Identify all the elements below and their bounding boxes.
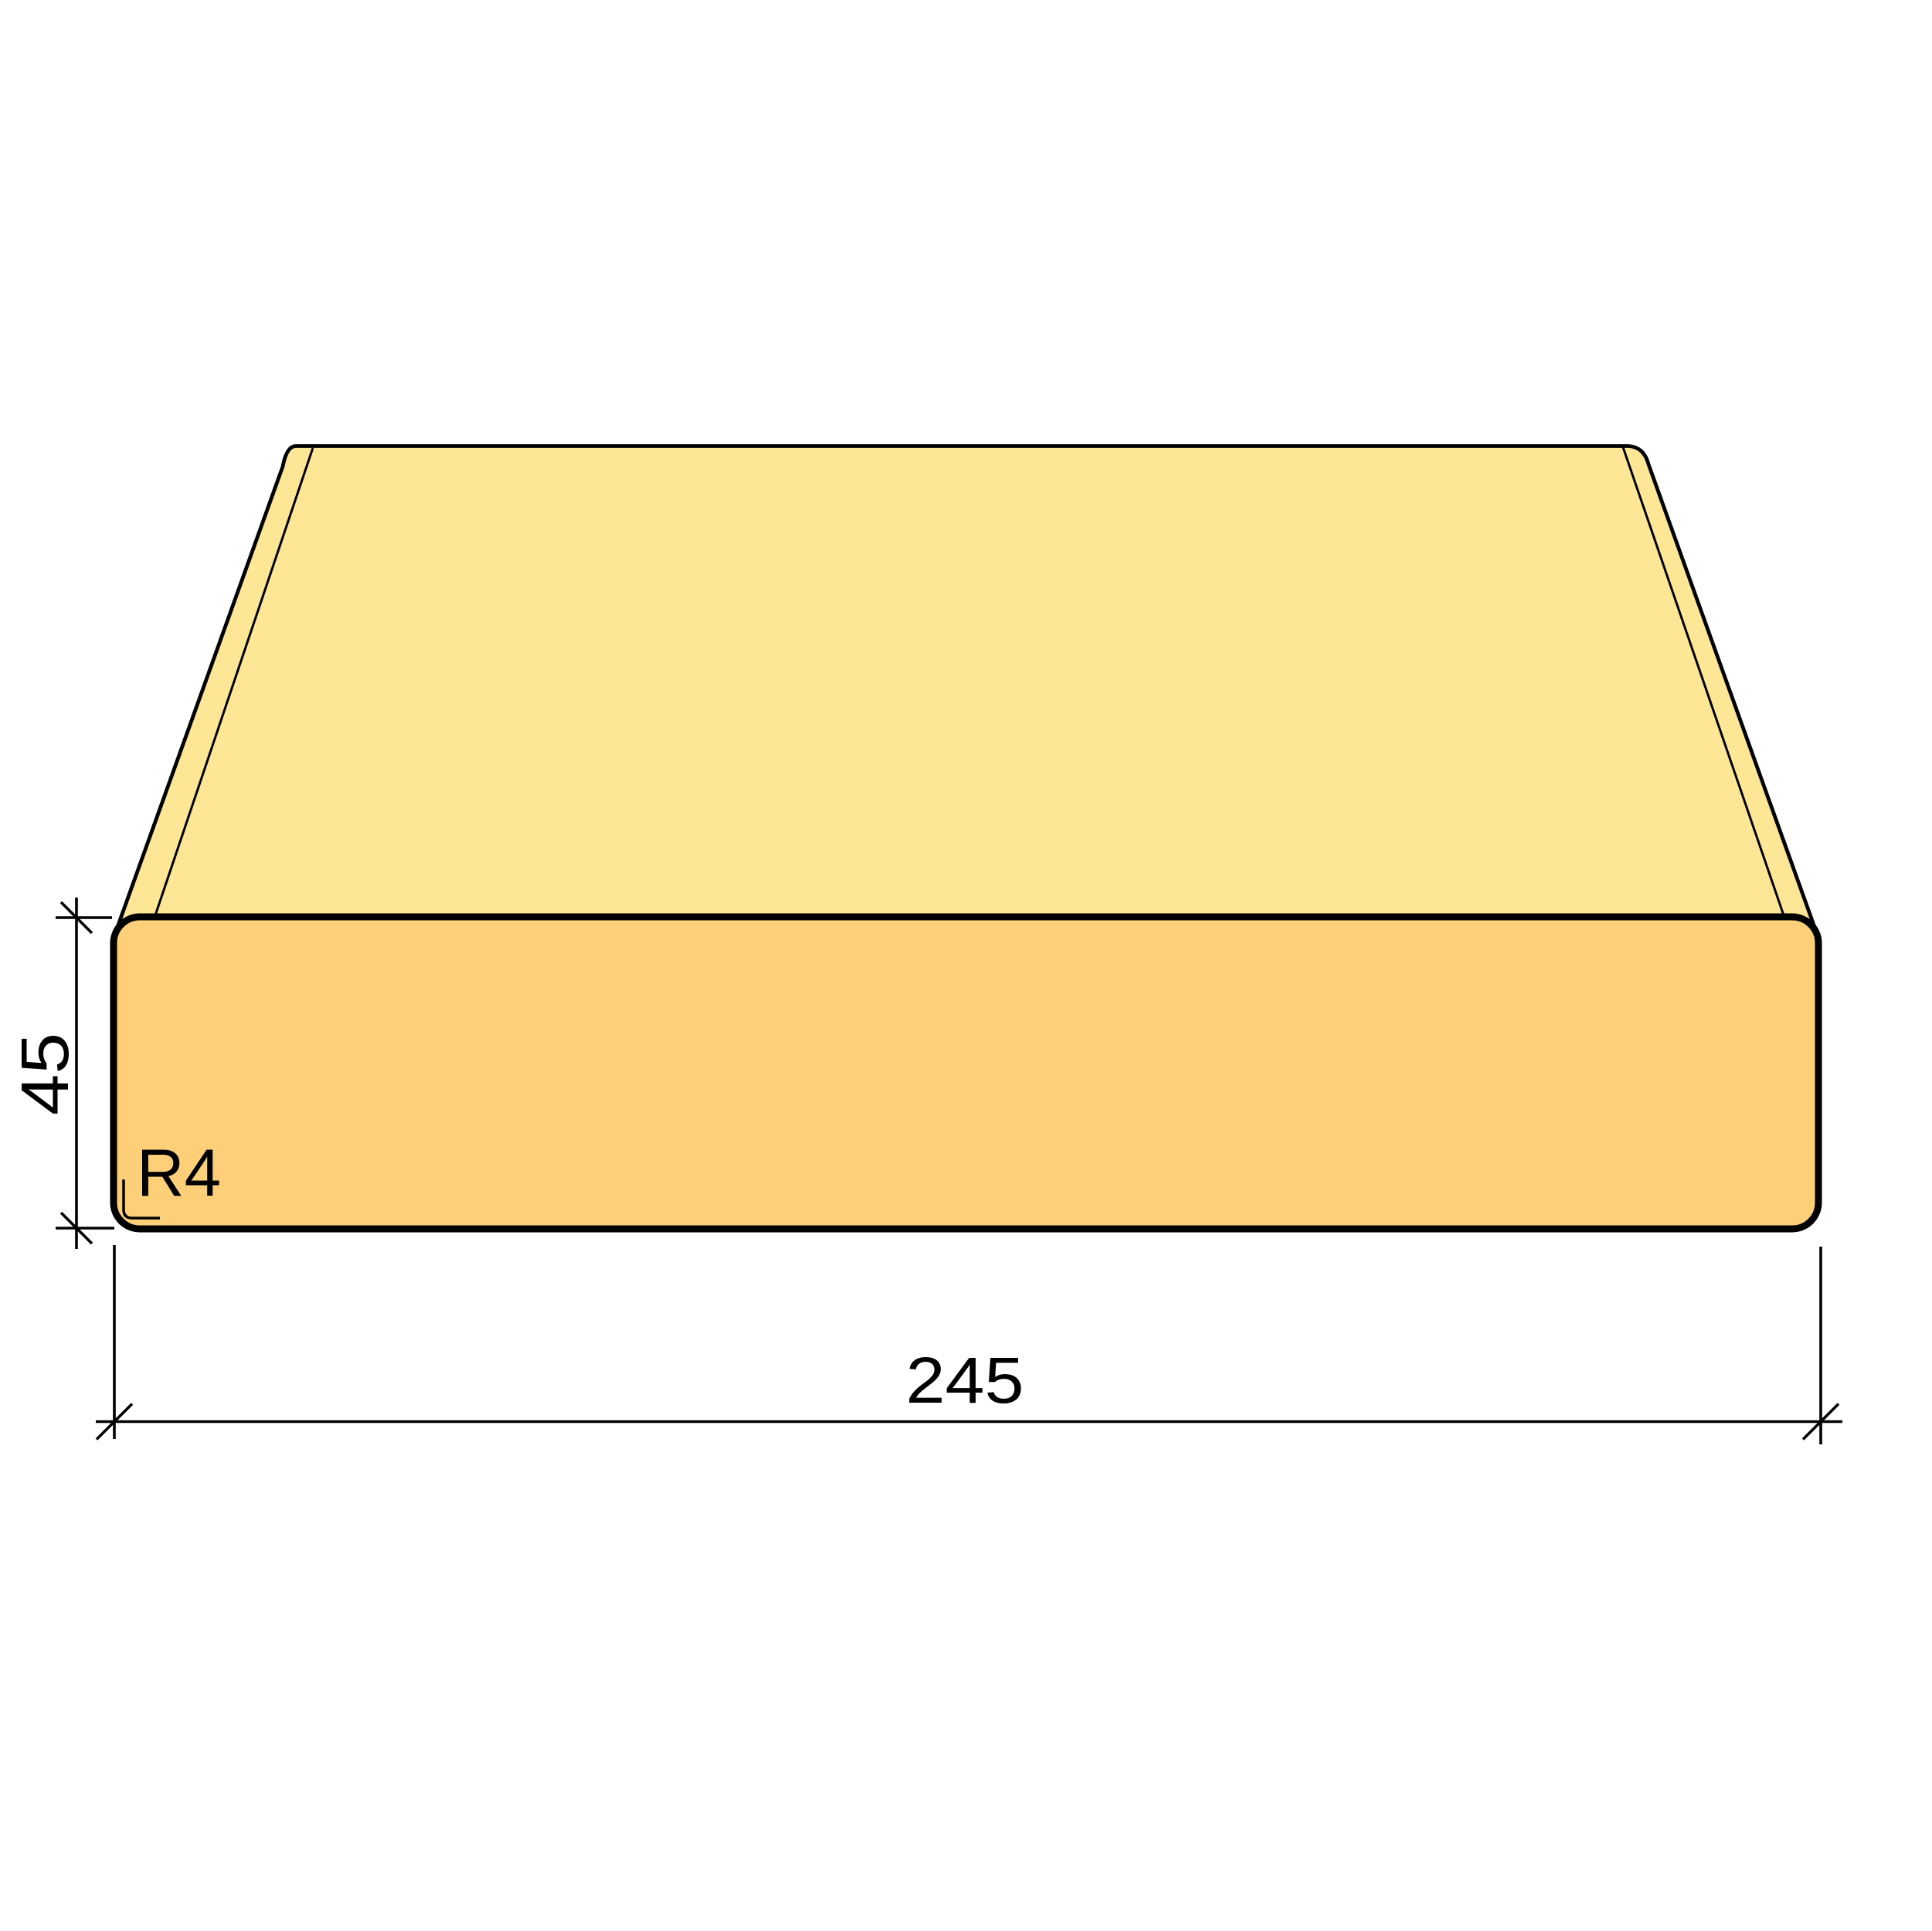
svg-text:45: 45 [8,1033,83,1115]
svg-text:R4: R4 [137,1136,221,1210]
svg-text:245: 245 [906,1344,1024,1417]
